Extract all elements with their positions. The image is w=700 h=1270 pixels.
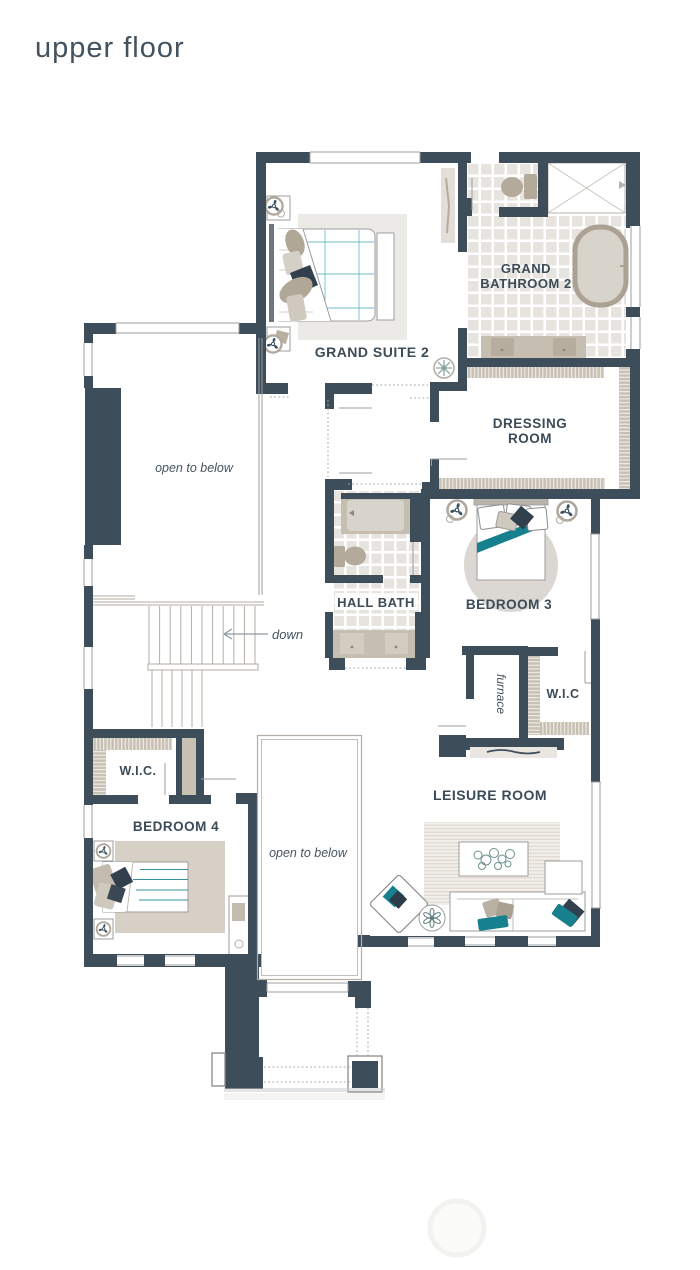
svg-text:down: down (272, 627, 303, 642)
svg-text:DRESSING: DRESSING (493, 416, 568, 431)
svg-text:LEISURE ROOM: LEISURE ROOM (433, 787, 547, 803)
svg-text:BEDROOM 3: BEDROOM 3 (466, 597, 552, 612)
svg-text:W.I.C: W.I.C (546, 687, 579, 701)
svg-text:W.I.C.: W.I.C. (119, 764, 156, 778)
svg-text:HALL BATH: HALL BATH (337, 595, 415, 610)
svg-text:GRAND: GRAND (501, 261, 551, 276)
svg-text:open to below: open to below (155, 461, 234, 475)
svg-text:open to below: open to below (269, 846, 348, 860)
svg-text:ROOM: ROOM (508, 431, 552, 446)
svg-text:furnace: furnace (494, 674, 508, 714)
svg-text:GRAND SUITE 2: GRAND SUITE 2 (315, 344, 430, 360)
svg-text:BEDROOM 4: BEDROOM 4 (133, 819, 219, 834)
svg-text:BATHROOM 2: BATHROOM 2 (480, 276, 571, 291)
svg-text:upper floor: upper floor (35, 32, 185, 64)
